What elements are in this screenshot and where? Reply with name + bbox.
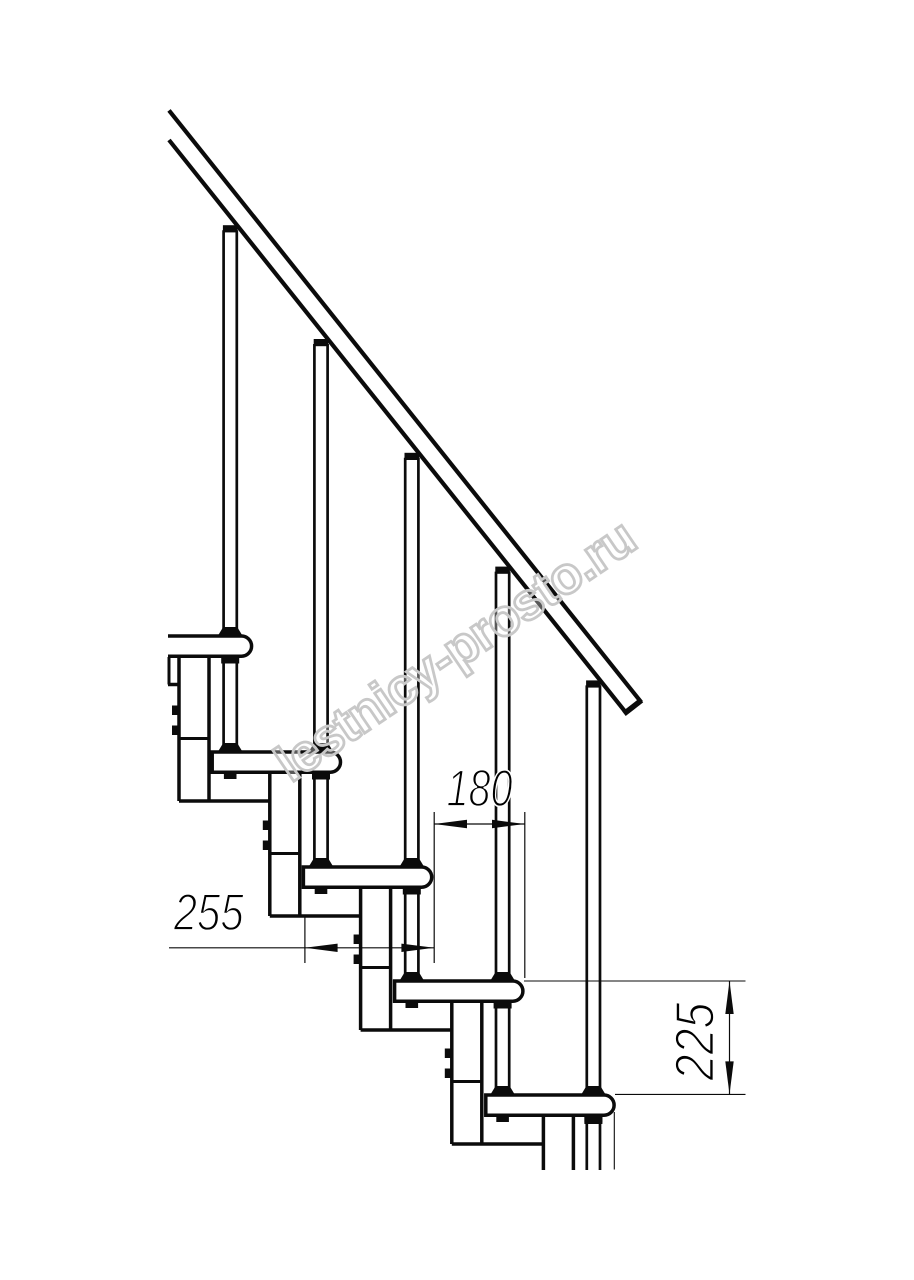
svg-text:180: 180 [447, 760, 513, 818]
svg-text:225: 225 [664, 1002, 726, 1081]
svg-text:255: 255 [173, 884, 245, 942]
